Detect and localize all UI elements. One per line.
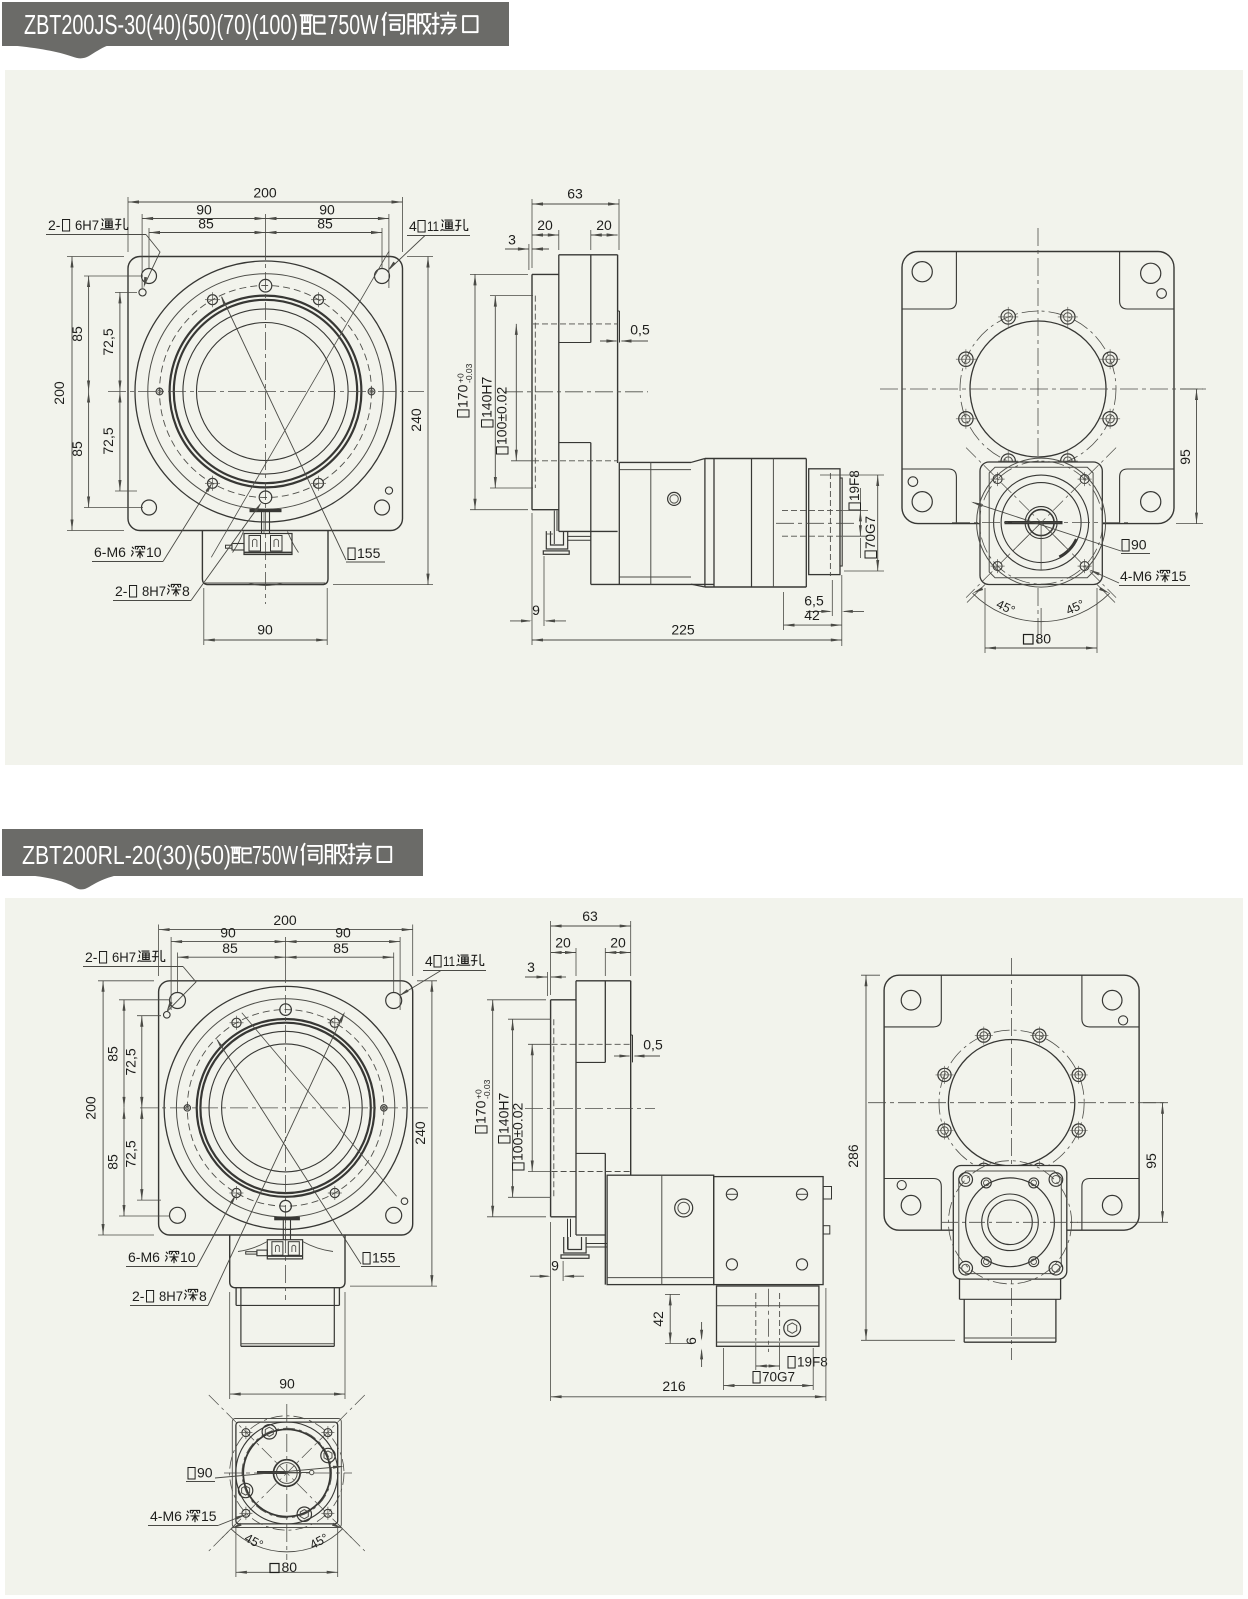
svg-text:ZBT200RL-20(30)(50): ZBT200RL-20(30)(50) bbox=[22, 840, 231, 870]
svg-text:0,5: 0,5 bbox=[630, 322, 650, 338]
svg-text:85: 85 bbox=[317, 216, 333, 232]
svg-text:63: 63 bbox=[582, 908, 598, 924]
svg-text:200: 200 bbox=[83, 1096, 99, 1120]
svg-text:-0.03: -0.03 bbox=[464, 363, 474, 383]
svg-text:6-M6: 6-M6 bbox=[94, 544, 126, 560]
svg-text:19F8: 19F8 bbox=[797, 1355, 828, 1370]
svg-text:72,5: 72,5 bbox=[100, 328, 116, 355]
svg-text:2-: 2- bbox=[85, 949, 98, 965]
svg-text:0,5: 0,5 bbox=[643, 1037, 663, 1053]
svg-text:8: 8 bbox=[199, 1288, 207, 1304]
svg-text:ZBT200JS-30(40)(50)(70)(100): ZBT200JS-30(40)(50)(70)(100) bbox=[24, 9, 298, 40]
svg-text:85: 85 bbox=[105, 1046, 121, 1062]
svg-text:200: 200 bbox=[253, 185, 277, 201]
svg-text:90: 90 bbox=[335, 925, 351, 941]
svg-text:-0.03: -0.03 bbox=[482, 1079, 492, 1099]
svg-text:4-M6: 4-M6 bbox=[1120, 568, 1152, 584]
svg-text:20: 20 bbox=[596, 217, 612, 233]
svg-text:42: 42 bbox=[804, 607, 820, 623]
svg-text:85: 85 bbox=[105, 1154, 121, 1170]
svg-text:8H7: 8H7 bbox=[142, 583, 166, 599]
svg-text:6-M6: 6-M6 bbox=[128, 1249, 160, 1265]
svg-text:15: 15 bbox=[1171, 568, 1187, 584]
svg-text:100±0.02: 100±0.02 bbox=[494, 386, 510, 445]
svg-text:42: 42 bbox=[650, 1311, 666, 1327]
svg-text:63: 63 bbox=[567, 186, 583, 202]
svg-text:85: 85 bbox=[333, 940, 349, 956]
svg-text:240: 240 bbox=[412, 1121, 428, 1145]
svg-text:3: 3 bbox=[527, 959, 535, 975]
svg-text:170: 170 bbox=[473, 1100, 489, 1124]
svg-text:20: 20 bbox=[537, 217, 553, 233]
svg-text:20: 20 bbox=[555, 935, 571, 951]
svg-text:9: 9 bbox=[532, 602, 540, 618]
svg-text:2-: 2- bbox=[48, 217, 61, 233]
svg-text:170: 170 bbox=[455, 384, 471, 408]
svg-text:2-: 2- bbox=[115, 583, 128, 599]
svg-text:6H7: 6H7 bbox=[75, 217, 99, 233]
svg-text:8H7: 8H7 bbox=[159, 1288, 183, 1304]
svg-text:225: 225 bbox=[671, 622, 695, 638]
svg-text:70G7: 70G7 bbox=[762, 1370, 795, 1385]
svg-text:95: 95 bbox=[1143, 1153, 1159, 1169]
svg-text:90: 90 bbox=[279, 1376, 295, 1392]
svg-text:11: 11 bbox=[443, 954, 455, 969]
svg-text:72,5: 72,5 bbox=[123, 1140, 139, 1167]
svg-text:4: 4 bbox=[409, 218, 417, 234]
svg-text:85: 85 bbox=[198, 216, 214, 232]
svg-text:155: 155 bbox=[372, 1250, 396, 1266]
svg-text:6H7: 6H7 bbox=[112, 949, 136, 965]
svg-text:6: 6 bbox=[683, 1337, 699, 1345]
svg-text:80: 80 bbox=[282, 1559, 298, 1575]
svg-text:90: 90 bbox=[257, 622, 273, 638]
svg-text:240: 240 bbox=[408, 408, 424, 432]
svg-text:750W: 750W bbox=[328, 9, 379, 40]
svg-text:95: 95 bbox=[1177, 449, 1193, 465]
svg-text:286: 286 bbox=[845, 1144, 861, 1168]
svg-text:85: 85 bbox=[69, 441, 85, 457]
svg-text:80: 80 bbox=[1036, 631, 1052, 647]
svg-text:140H7: 140H7 bbox=[479, 377, 495, 418]
svg-text:90: 90 bbox=[220, 925, 236, 941]
svg-text:70G7: 70G7 bbox=[863, 516, 878, 549]
svg-text:90: 90 bbox=[197, 1465, 213, 1481]
svg-text:200: 200 bbox=[273, 912, 297, 928]
svg-text:3: 3 bbox=[508, 232, 516, 248]
svg-text:10: 10 bbox=[180, 1249, 196, 1265]
svg-text:216: 216 bbox=[662, 1378, 686, 1394]
svg-text:100±0.02: 100±0.02 bbox=[510, 1102, 526, 1161]
svg-text:8: 8 bbox=[182, 583, 190, 599]
svg-text:4: 4 bbox=[425, 953, 433, 969]
svg-text:155: 155 bbox=[357, 545, 381, 561]
svg-text:20: 20 bbox=[610, 935, 626, 951]
svg-text:750W: 750W bbox=[252, 840, 298, 870]
svg-text:11: 11 bbox=[427, 219, 439, 234]
svg-text:15: 15 bbox=[201, 1508, 217, 1524]
svg-text:9: 9 bbox=[551, 1258, 559, 1274]
svg-text:85: 85 bbox=[69, 326, 85, 342]
svg-text:200: 200 bbox=[51, 381, 67, 405]
svg-text:72,5: 72,5 bbox=[123, 1048, 139, 1075]
svg-text:72,5: 72,5 bbox=[100, 427, 116, 454]
svg-text:90: 90 bbox=[1131, 537, 1147, 553]
svg-text:85: 85 bbox=[222, 940, 238, 956]
svg-text:10: 10 bbox=[146, 544, 162, 560]
svg-text:4-M6: 4-M6 bbox=[150, 1508, 182, 1524]
svg-text:2-: 2- bbox=[132, 1288, 145, 1304]
